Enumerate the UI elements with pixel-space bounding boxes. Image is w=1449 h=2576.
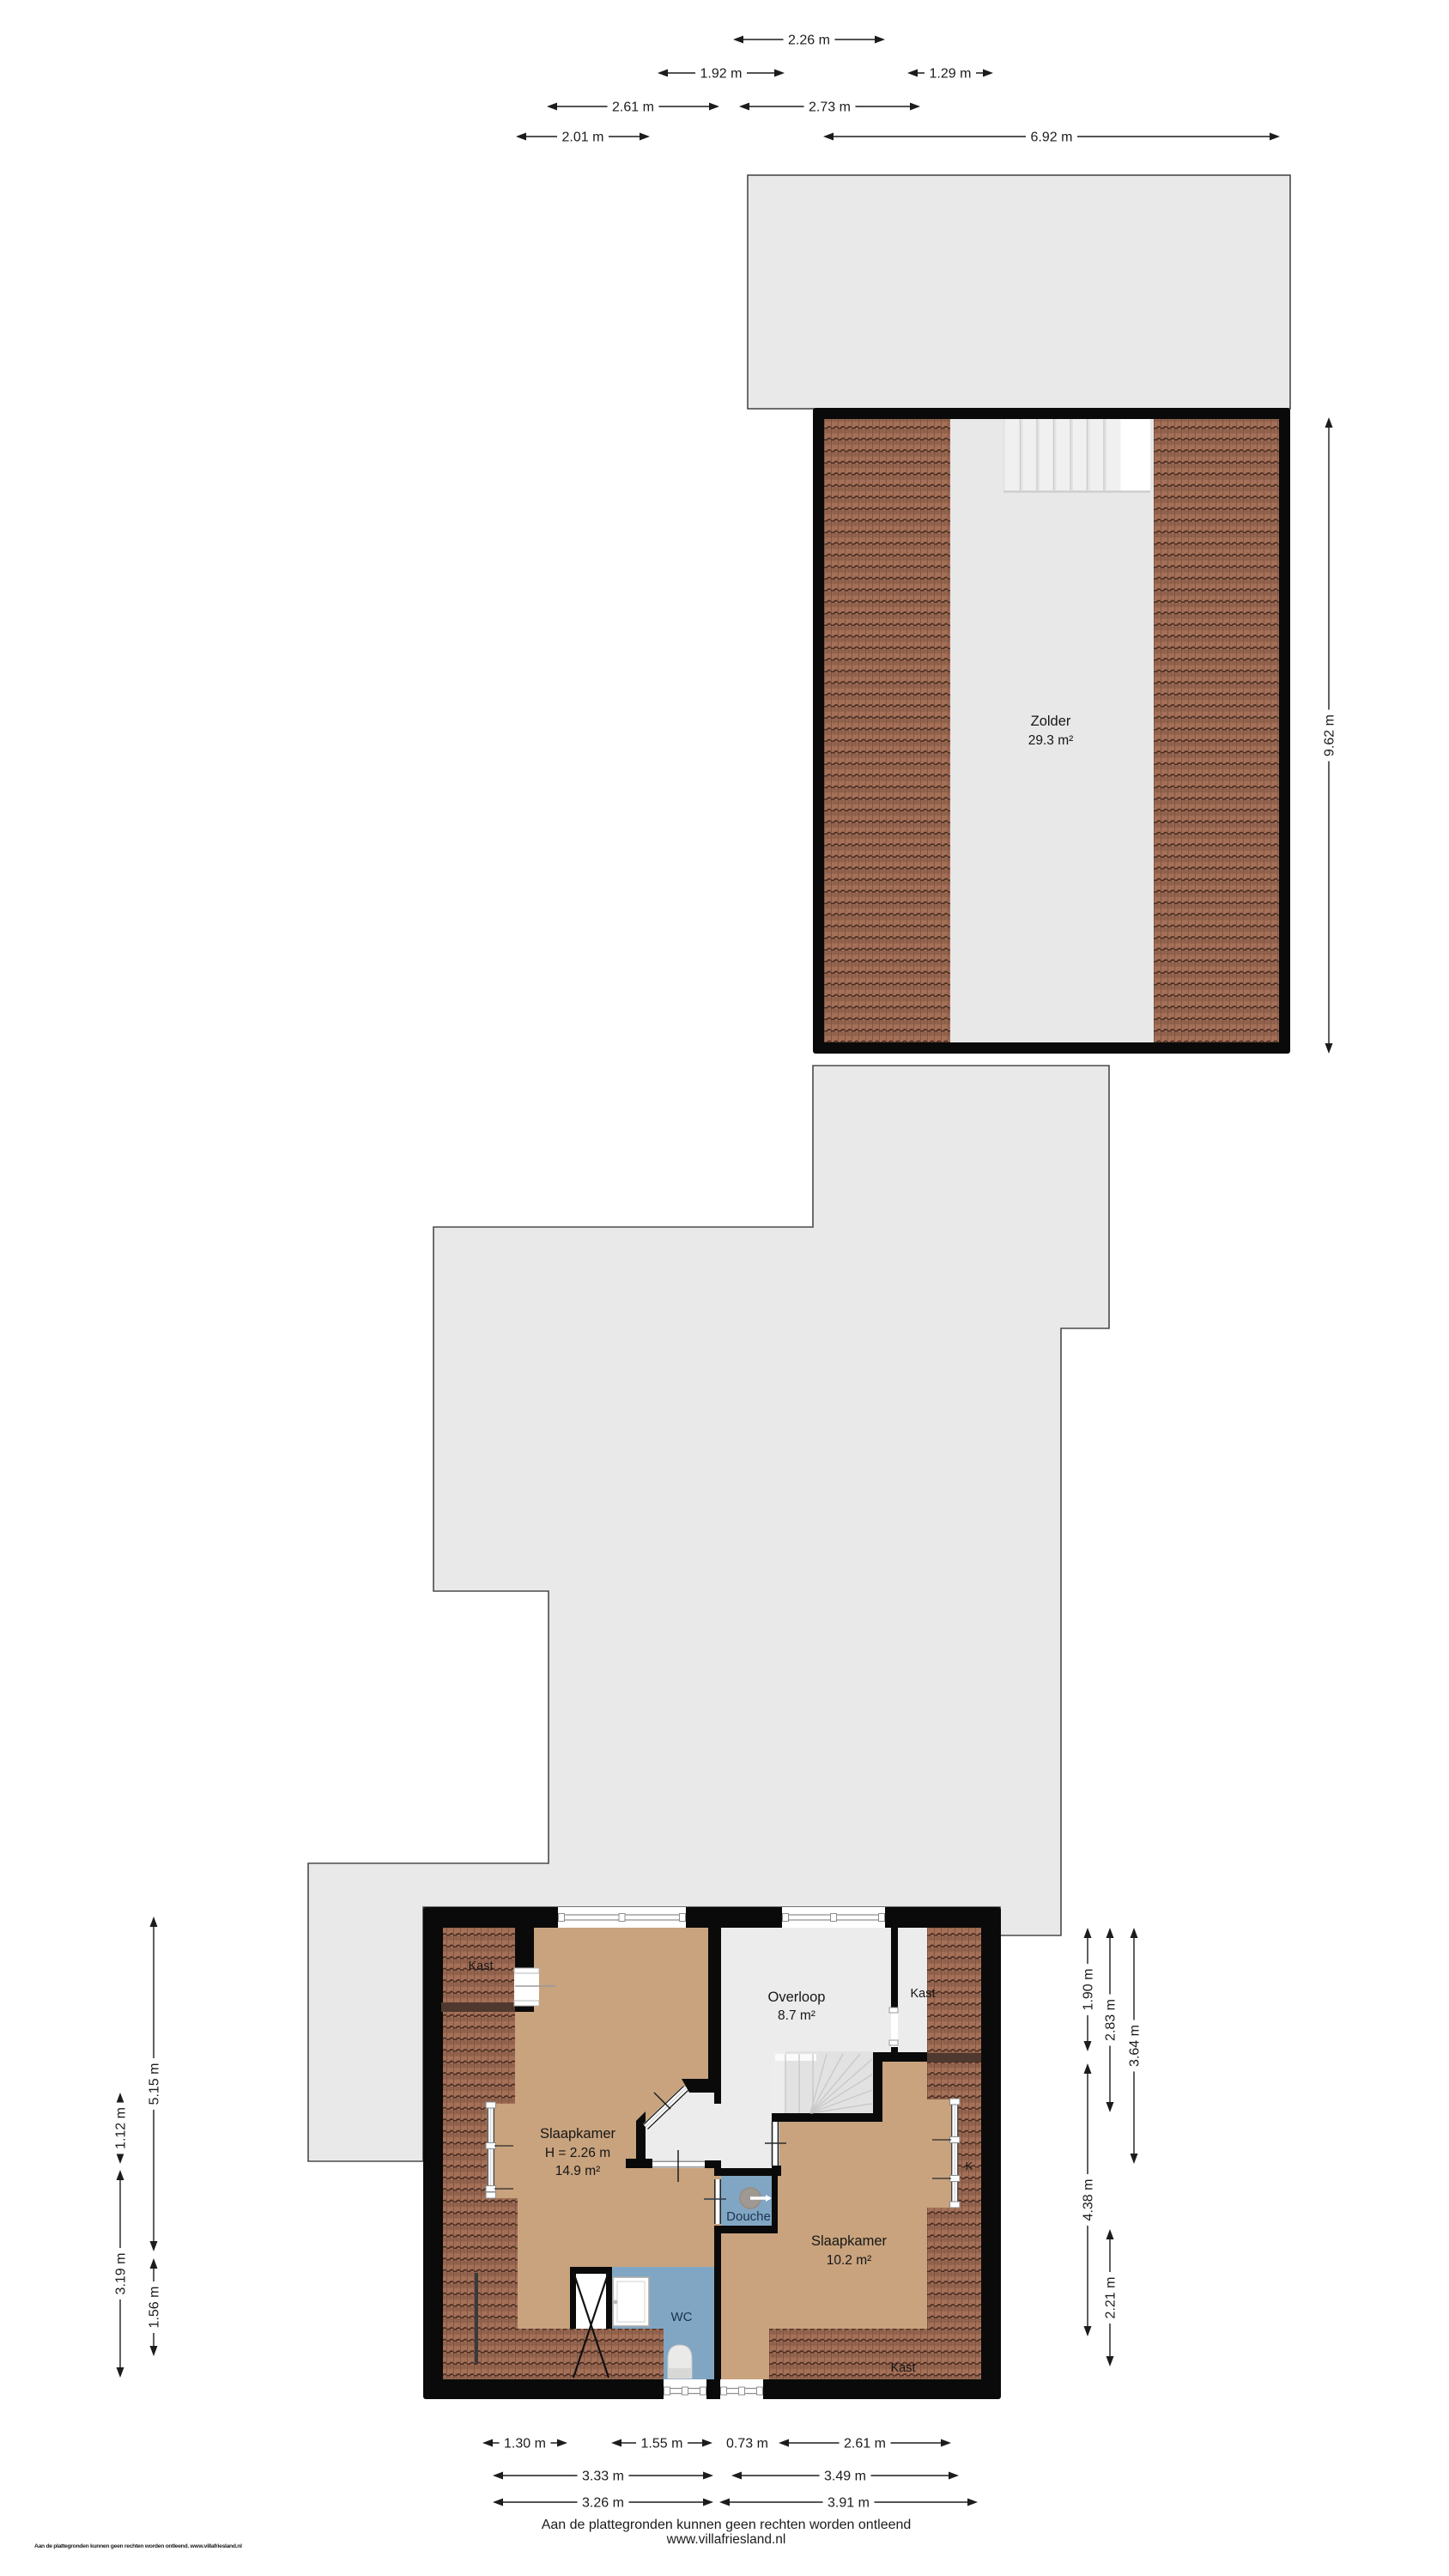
svg-text:Douche: Douche: [726, 2209, 771, 2224]
svg-text:1.12 m: 1.12 m: [114, 2107, 129, 2149]
svg-text:1.29 m: 1.29 m: [930, 67, 972, 82]
svg-text:Kast: Kast: [890, 2361, 915, 2375]
svg-text:2.83 m: 2.83 m: [1104, 1999, 1119, 2041]
svg-text:1.56 m: 1.56 m: [148, 2287, 162, 2329]
svg-text:Slaapkamer: Slaapkamer: [540, 2126, 616, 2142]
svg-text:10.2 m²: 10.2 m²: [827, 2253, 872, 2268]
svg-text:3.33 m: 3.33 m: [582, 2470, 624, 2484]
svg-text:3.64 m: 3.64 m: [1128, 2025, 1143, 2067]
svg-text:3.19 m: 3.19 m: [114, 2253, 129, 2295]
svg-text:5.15 m: 5.15 m: [148, 2063, 162, 2105]
svg-text:2.61 m: 2.61 m: [612, 100, 654, 115]
svg-text:2.73 m: 2.73 m: [809, 100, 851, 115]
svg-text:K: K: [966, 2160, 973, 2172]
svg-text:3.26 m: 3.26 m: [582, 2496, 624, 2511]
svg-text:Slaapkamer: Slaapkamer: [811, 2233, 888, 2249]
svg-text:1.55 m: 1.55 m: [641, 2437, 683, 2451]
svg-text:3.91 m: 3.91 m: [828, 2496, 870, 2511]
svg-text:1.90 m: 1.90 m: [1082, 1969, 1096, 2011]
svg-text:0.73 m: 0.73 m: [726, 2437, 768, 2451]
svg-text:2.61 m: 2.61 m: [844, 2437, 886, 2451]
svg-text:1.30 m: 1.30 m: [504, 2437, 546, 2451]
svg-text:8.7 m²: 8.7 m²: [778, 2008, 815, 2023]
svg-text:2.21 m: 2.21 m: [1104, 2277, 1119, 2319]
svg-text:2.26 m: 2.26 m: [788, 33, 830, 48]
svg-text:Zolder: Zolder: [1031, 714, 1071, 729]
svg-text:6.92 m: 6.92 m: [1031, 131, 1073, 145]
svg-text:3.49 m: 3.49 m: [824, 2470, 866, 2484]
svg-text:H = 2.26 m: H = 2.26 m: [545, 2146, 610, 2160]
svg-text:29.3 m²: 29.3 m²: [1028, 733, 1074, 748]
svg-text:www.villafriesland.nl: www.villafriesland.nl: [666, 2532, 786, 2547]
svg-text:Overloop: Overloop: [768, 1990, 826, 2005]
svg-text:2.01 m: 2.01 m: [562, 131, 604, 145]
svg-text:WC: WC: [671, 2310, 693, 2324]
svg-text:9.62 m: 9.62 m: [1323, 714, 1337, 756]
svg-text:4.38 m: 4.38 m: [1082, 2179, 1096, 2221]
svg-text:Kast: Kast: [910, 1987, 935, 2001]
svg-text:Aan de plattegronden kunnen ge: Aan de plattegronden kunnen geen rechten…: [542, 2518, 912, 2532]
svg-text:1.92 m: 1.92 m: [700, 67, 743, 82]
svg-text:Kast: Kast: [468, 1959, 493, 1973]
svg-text:Aan de plattegronden kunnen ge: Aan de plattegronden kunnen geen rechten…: [34, 2543, 242, 2549]
svg-text:14.9 m²: 14.9 m²: [555, 2164, 601, 2178]
